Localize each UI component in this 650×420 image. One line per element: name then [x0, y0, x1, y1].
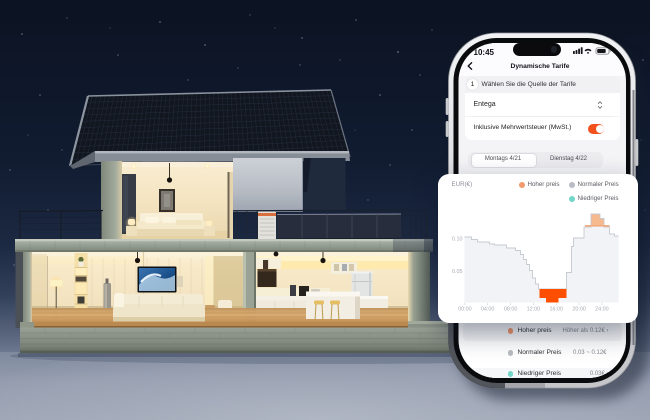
svg-text:20:00: 20:00 [572, 306, 586, 312]
svg-text:16:00: 16:00 [549, 306, 563, 312]
svg-text:24:00: 24:00 [595, 306, 609, 312]
svg-text:0.10: 0.10 [452, 236, 463, 242]
svg-text:00:00: 00:00 [458, 306, 472, 312]
svg-text:04:00: 04:00 [480, 306, 494, 312]
svg-text:12:00: 12:00 [526, 306, 540, 312]
svg-text:0.05: 0.05 [452, 269, 463, 275]
svg-text:08:00: 08:00 [503, 306, 516, 312]
